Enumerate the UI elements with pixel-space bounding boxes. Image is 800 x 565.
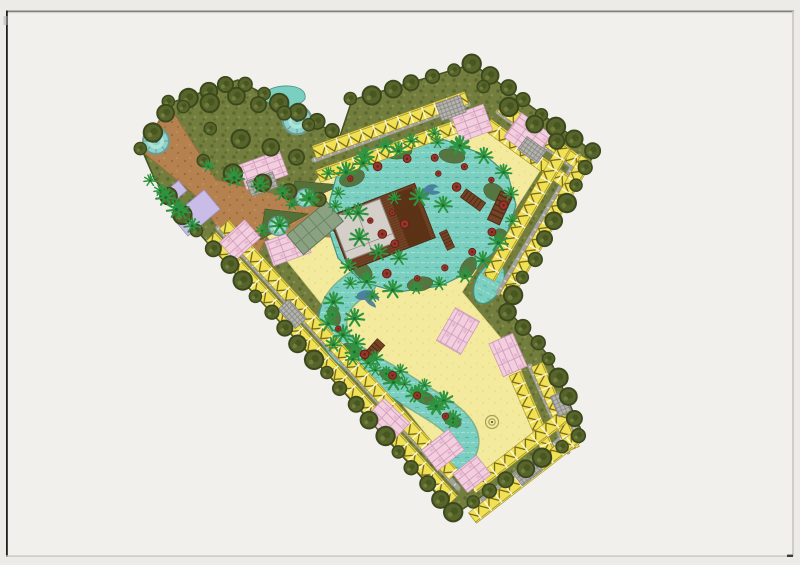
tree-icon: [419, 475, 436, 492]
page-border-top: [6, 11, 794, 13]
umbrella-icon: [389, 210, 395, 216]
umbrella-icon: [435, 171, 441, 177]
tree-icon: [503, 285, 523, 305]
umbrella-icon: [488, 228, 496, 236]
tree-icon: [548, 133, 565, 150]
tree-icon: [498, 303, 517, 322]
umbrella-icon: [414, 392, 421, 399]
tree-icon: [516, 459, 535, 478]
umbrella-icon: [442, 413, 448, 419]
tree-icon: [134, 142, 148, 156]
tree-icon: [177, 100, 191, 114]
tree-icon: [200, 93, 220, 113]
tree-icon: [544, 211, 563, 230]
tree-icon: [555, 440, 569, 454]
tree-icon: [499, 97, 519, 117]
tree-icon: [227, 87, 246, 106]
site-plan-image: [0, 0, 800, 565]
tree-icon: [325, 123, 340, 138]
tree-icon: [425, 69, 440, 84]
tree-icon: [531, 335, 546, 350]
tree-icon: [548, 368, 568, 388]
tree-icon: [482, 483, 497, 498]
tree-icon: [497, 471, 514, 488]
tree-icon: [565, 129, 584, 148]
tree-icon: [156, 104, 175, 123]
tree-icon: [261, 138, 280, 157]
umbrella-icon: [335, 326, 341, 332]
tree-icon: [348, 396, 365, 413]
tree-icon: [584, 142, 601, 159]
umbrella-icon: [347, 176, 353, 182]
tree-icon: [466, 495, 480, 509]
umbrella-icon: [373, 162, 382, 171]
tree-icon: [578, 160, 593, 175]
page-corner-mark: [787, 555, 793, 557]
tree-icon: [302, 118, 316, 132]
umbrella-icon: [360, 350, 369, 359]
tree-icon: [344, 92, 358, 106]
umbrella-icon: [469, 248, 476, 255]
umbrella-icon: [391, 240, 399, 248]
page-border-bottom: [6, 555, 793, 556]
tree-icon: [384, 80, 403, 99]
tree-icon: [516, 271, 530, 285]
tree-icon: [249, 290, 263, 304]
umbrella-icon: [442, 265, 448, 271]
tree-icon: [536, 230, 553, 247]
umbrella-icon: [378, 230, 387, 239]
tree-icon: [571, 428, 586, 443]
tree-icon: [431, 490, 450, 509]
umbrella-icon: [403, 155, 411, 163]
tree-icon: [288, 335, 307, 354]
tree-icon: [514, 319, 531, 336]
tree-icon: [403, 460, 418, 475]
tree-icon: [143, 122, 163, 142]
tree-icon: [231, 129, 251, 149]
tree-icon: [462, 54, 482, 74]
tree-icon: [559, 387, 578, 406]
tree-icon: [557, 193, 577, 213]
tree-icon: [264, 305, 279, 320]
tree-icon: [525, 115, 544, 134]
page-border-left: [6, 11, 8, 558]
tree-icon: [447, 63, 461, 77]
tree-icon: [360, 411, 379, 430]
umbrella-icon: [431, 154, 438, 161]
tree-icon: [277, 105, 292, 120]
tree-icon: [500, 79, 517, 96]
tree-icon: [375, 426, 395, 446]
tree-icon: [569, 178, 583, 192]
screenshot-stage: [0, 0, 800, 565]
umbrella-icon: [389, 371, 397, 379]
page-border-top-inner: [6, 12, 794, 13]
umbrella-icon: [489, 177, 495, 183]
tree-icon: [250, 96, 267, 113]
tree-icon: [304, 350, 324, 370]
umbrella-icon: [414, 275, 420, 281]
umbrella-icon: [499, 201, 508, 210]
tree-icon: [233, 270, 253, 290]
tree-icon: [532, 448, 552, 468]
tree-icon: [566, 410, 583, 427]
tree-icon: [542, 352, 556, 366]
tree-icon: [362, 85, 382, 105]
umbrella-icon: [382, 269, 391, 278]
tree-icon: [392, 445, 406, 459]
tree-icon: [288, 149, 305, 166]
tree-icon: [528, 252, 543, 267]
tree-icon: [205, 240, 222, 257]
umbrella-icon: [367, 218, 373, 224]
umbrella-icon: [461, 163, 467, 169]
tree-icon: [276, 320, 293, 337]
tree-icon: [204, 122, 218, 136]
tree-icon: [221, 255, 240, 274]
tree-icon: [477, 80, 491, 94]
umbrella-icon: [400, 220, 409, 229]
scan-artifact: [4, 16, 8, 25]
tree-icon: [320, 366, 334, 380]
tree-icon: [403, 74, 420, 91]
umbrella-icon: [452, 183, 461, 192]
page-border-right: [792, 11, 794, 556]
tree-icon: [332, 381, 347, 396]
